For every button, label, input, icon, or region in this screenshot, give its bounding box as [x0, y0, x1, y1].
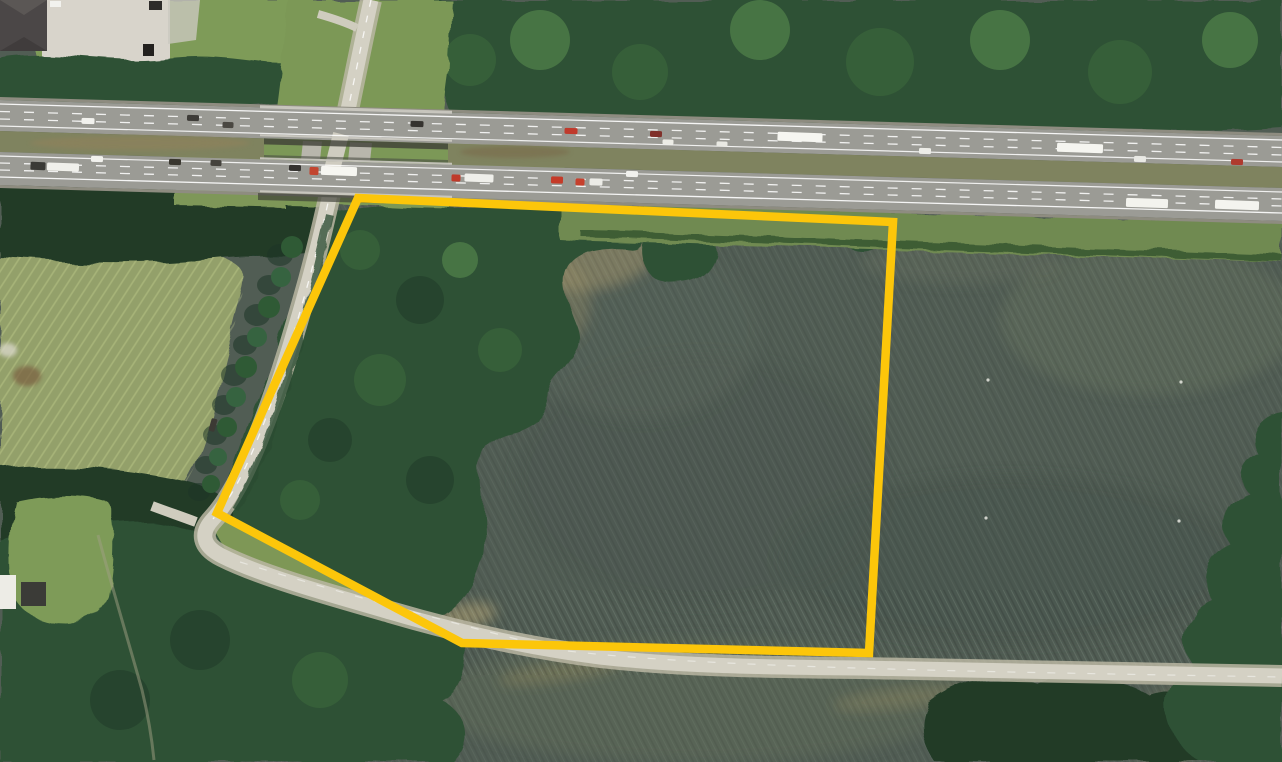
vehicle-truck: [30, 162, 45, 171]
vehicle-truck: [309, 167, 318, 175]
parked-car: [50, 1, 61, 7]
vehicle-truck: [451, 174, 460, 181]
vehicle-truck: [1057, 143, 1103, 154]
underpass-road: [332, 134, 341, 170]
field-speck: [1179, 380, 1182, 383]
vehicle-car: [91, 156, 103, 162]
small-building: [21, 582, 46, 606]
field-speck: [986, 378, 989, 381]
vehicle-car: [289, 165, 301, 171]
satellite-canvas[interactable]: [0, 0, 1282, 762]
median-dirt: [30, 136, 250, 150]
vehicle-car: [551, 176, 563, 183]
vehicle-car: [919, 148, 931, 154]
vehicle-truck: [1126, 198, 1168, 208]
vehicle-car: [81, 118, 94, 124]
vehicle-car: [626, 171, 638, 177]
vehicle-car: [210, 160, 221, 166]
vehicle-car: [169, 159, 181, 165]
field-speck: [984, 516, 987, 519]
vehicle-truck: [321, 166, 357, 176]
field-speck: [1177, 519, 1180, 522]
vehicle-truck: [589, 178, 602, 185]
vehicle-truck: [47, 162, 79, 171]
vehicle-car: [650, 131, 662, 137]
parked-car: [149, 1, 162, 10]
vehicle-car: [187, 115, 199, 121]
vehicle-car: [410, 121, 423, 127]
vehicle-car: [564, 128, 577, 134]
median-dirt: [460, 146, 570, 158]
aerial-map-view[interactable]: [0, 0, 1282, 762]
vehicle-car: [662, 139, 673, 144]
vehicle-truck: [575, 178, 584, 185]
vehicle-truck: [1215, 200, 1259, 211]
vehicle-truck: [777, 132, 822, 143]
building-roof: [0, 0, 47, 51]
vehicle-car: [1134, 156, 1146, 162]
dumpster: [143, 44, 154, 56]
small-building: [0, 575, 16, 609]
vehicle-car: [222, 122, 233, 128]
vehicle-car: [1231, 159, 1243, 165]
vehicle-car: [716, 141, 727, 146]
vehicle-truck: [464, 173, 493, 182]
